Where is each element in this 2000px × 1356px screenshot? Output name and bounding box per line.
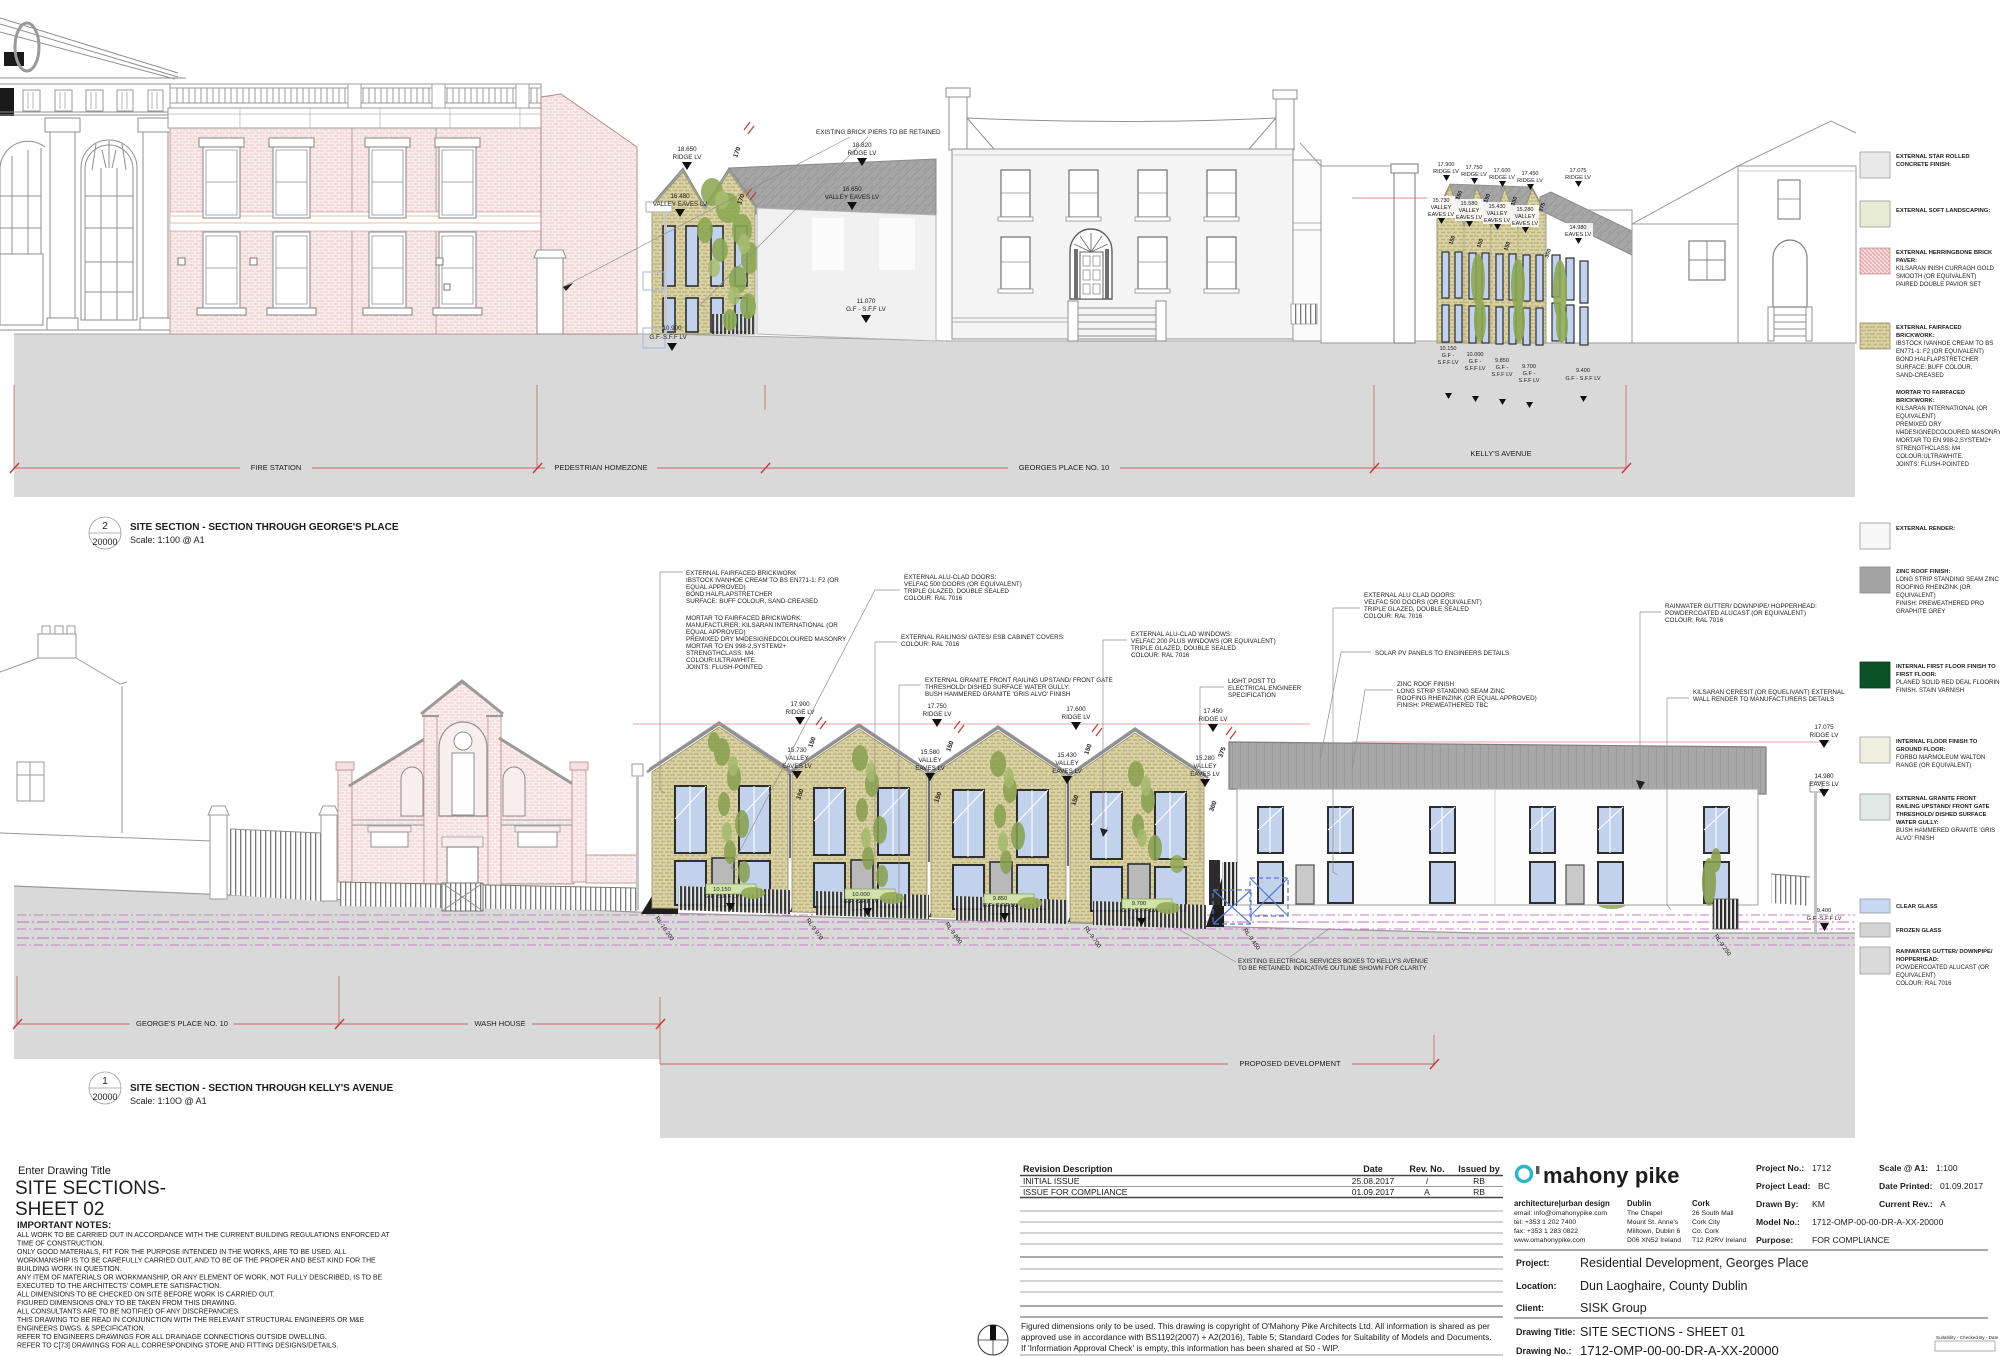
svg-text:17.075: 17.075 — [1569, 168, 1586, 174]
svg-text:15.280: 15.280 — [1516, 207, 1533, 213]
svg-text:ELECTRICAL ENGINEER: ELECTRICAL ENGINEER — [1228, 685, 1302, 692]
svg-text:SPECIFICATION: SPECIFICATION — [1228, 692, 1276, 699]
svg-text:ROOFING RHEINZINK (OR EQUAL AP: ROOFING RHEINZINK (OR EQUAL APPROVED) — [1397, 695, 1537, 702]
svg-text:SISK Group: SISK Group — [1580, 1301, 1647, 1315]
svg-text:Milltown, Dublin 6: Milltown, Dublin 6 — [1627, 1228, 1680, 1235]
svg-text:11.070: 11.070 — [857, 298, 876, 305]
svg-text:G.F -: G.F - — [1496, 365, 1509, 371]
svg-text:INTERNAL FLOOR FINISH TO: INTERNAL FLOOR FINISH TO — [1896, 739, 1978, 745]
svg-text:Project Lead:: Project Lead: — [1756, 1181, 1811, 1191]
svg-text:THRESHOLD/ DISHED SURFACE: THRESHOLD/ DISHED SURFACE — [1896, 812, 1987, 818]
svg-text:S.F.F LV: S.F.F LV — [1491, 372, 1512, 378]
svg-text:20000: 20000 — [92, 1092, 117, 1102]
svg-text:RANGE (OR EQUIVALENT): RANGE (OR EQUIVALENT) — [1896, 763, 1971, 769]
svg-text:17.900: 17.900 — [1437, 162, 1454, 168]
svg-text:ALVO' FINISH: ALVO' FINISH — [1896, 836, 1934, 842]
svg-text:EAVES LV: EAVES LV — [915, 765, 945, 772]
svg-text:COLOUR: RAL 7016: COLOUR: RAL 7016 — [1665, 617, 1724, 624]
svg-text:Suitability - Checked By - Dat: Suitability - Checked By - Date — [1936, 1335, 1999, 1340]
svg-text:RIDGE LV: RIDGE LV — [1433, 169, 1459, 175]
svg-text:If 'Information Approval Check: If 'Information Approval Check' is empty… — [1021, 1343, 1340, 1353]
svg-text:17.600: 17.600 — [1493, 168, 1510, 174]
svg-text:1712-OMP-00-00-DR-A-XX-20000: 1712-OMP-00-00-DR-A-XX-20000 — [1812, 1217, 1944, 1227]
svg-text:COLOUR: RAL 7016: COLOUR: RAL 7016 — [1364, 613, 1423, 620]
svg-text:SITE SECTION - SECTION THROUGH: SITE SECTION - SECTION THROUGH GEORGE'S … — [130, 522, 399, 533]
svg-text:MORTAR TO EN 998-2,SYSTEM2+: MORTAR TO EN 998-2,SYSTEM2+ — [1896, 438, 1992, 444]
svg-text:18.650: 18.650 — [677, 146, 697, 153]
svg-text:EXTERNAL FAIRFACED BRICKWORK: EXTERNAL FAIRFACED BRICKWORK — [686, 570, 797, 577]
svg-text:TO BE RETAINED. INDICATIVE OUT: TO BE RETAINED. INDICATIVE OUTLINE SHOWN… — [1238, 965, 1427, 972]
svg-text:VELFAC 500 DOORS (OR EQUIVALEN: VELFAC 500 DOORS (OR EQUIVALENT) — [1364, 599, 1482, 606]
svg-text:G.F -S.F.F LV: G.F -S.F.F LV — [983, 903, 1018, 909]
svg-text:MORTAR TO FAIRFACED BRICKWORK:: MORTAR TO FAIRFACED BRICKWORK: — [686, 615, 802, 622]
svg-text:14.980: 14.980 — [1569, 225, 1586, 231]
svg-text:RB: RB — [1473, 1187, 1485, 1197]
svg-text:SAND-CREASED: SAND-CREASED — [1896, 373, 1944, 379]
svg-text:Dun Laoghaire, County Dublin: Dun Laoghaire, County Dublin — [1580, 1279, 1748, 1293]
svg-text:Co. Cork: Co. Cork — [1692, 1228, 1719, 1235]
svg-text:RIDGE LV: RIDGE LV — [1810, 732, 1840, 739]
svg-text:EAVES LV: EAVES LV — [782, 763, 812, 770]
svg-text:SITE SECTION - SECTION THROUGH: SITE SECTION - SECTION THROUGH KELLY'S A… — [130, 1083, 393, 1094]
svg-text:TIME OF CONSTRUCTION.: TIME OF CONSTRUCTION. — [17, 1241, 104, 1248]
svg-text:S.F.F LV: S.F.F LV — [1437, 360, 1458, 366]
svg-text:EXTERNAL RAILINGS/ GATES/ ESB: EXTERNAL RAILINGS/ GATES/ ESB CABINET CO… — [901, 634, 1065, 641]
svg-text:VALLEY: VALLEY — [1515, 214, 1536, 220]
svg-text:9.850: 9.850 — [1495, 358, 1509, 364]
svg-text:RIDGE LV: RIDGE LV — [1062, 714, 1092, 721]
svg-text:G.F -: G.F - — [1469, 359, 1482, 365]
svg-text:Residential Development, Georg: Residential Development, Georges Place — [1580, 1256, 1809, 1270]
svg-text:Issued by: Issued by — [1458, 1164, 1500, 1174]
svg-text:Project No.:: Project No.: — [1756, 1163, 1804, 1173]
svg-text:01.09.2017: 01.09.2017 — [1940, 1181, 1983, 1191]
svg-text:EXTERNAL RENDER:: EXTERNAL RENDER: — [1896, 526, 1955, 532]
svg-text:Drawing Title:: Drawing Title: — [1516, 1327, 1575, 1337]
svg-text:A: A — [1940, 1199, 1946, 1209]
svg-text:COLOUR: RAL 7016: COLOUR: RAL 7016 — [904, 595, 963, 602]
svg-text:D06 XN52 Ireland: D06 XN52 Ireland — [1627, 1237, 1681, 1244]
svg-text:EXTERNAL STAR ROLLED: EXTERNAL STAR ROLLED — [1896, 154, 1970, 160]
svg-text:FIGURED DIMENSIONS ONLY TO BE: FIGURED DIMENSIONS ONLY TO BE TAKEN FROM… — [17, 1300, 237, 1307]
svg-text:EXISTING BRICK PIERS TO BE RET: EXISTING BRICK PIERS TO BE RETAINED — [816, 129, 941, 136]
svg-text:9.850: 9.850 — [993, 896, 1008, 902]
svg-text:approved use in accordance wit: approved use in accordance with BS1192(2… — [1021, 1332, 1492, 1342]
svg-text:01.09.2017: 01.09.2017 — [1352, 1187, 1395, 1197]
svg-text:EN771-1: F2 (OR EQUIVALENT): EN771-1: F2 (OR EQUIVALENT) — [1896, 349, 1984, 355]
svg-text:The Chapel: The Chapel — [1627, 1210, 1663, 1217]
svg-text:Scale: 1:10O @ A1: Scale: 1:10O @ A1 — [130, 1096, 207, 1106]
svg-text:email: info@omahonypike.com: email: info@omahonypike.com — [1514, 1210, 1607, 1217]
svg-text:ROOFING RHEINZINK (OR: ROOFING RHEINZINK (OR — [1896, 585, 1971, 591]
svg-text:Rev. No.: Rev. No. — [1409, 1164, 1444, 1174]
svg-text:BRICKWORK:: BRICKWORK: — [1896, 398, 1935, 404]
svg-text:PAIRED DOUBLE PAVIOR SET: PAIRED DOUBLE PAVIOR SET — [1896, 282, 1981, 288]
svg-text:EXTERNAL ALU CLAD DOORS:: EXTERNAL ALU CLAD DOORS: — [1364, 592, 1456, 599]
svg-text:1: 1 — [102, 1076, 108, 1087]
svg-text:SMOOTH (OR EQUIVALENT): SMOOTH (OR EQUIVALENT) — [1896, 274, 1976, 280]
svg-text:LIGHT POST TO: LIGHT POST TO — [1228, 678, 1276, 685]
svg-text:EAVES LV: EAVES LV — [1456, 215, 1482, 221]
svg-text:RAINWATER GUTTER/ DOWNPIPE/: RAINWATER GUTTER/ DOWNPIPE/ — [1896, 949, 1993, 955]
svg-text:PAVER:: PAVER: — [1896, 258, 1917, 264]
svg-text:S.F.F LV: S.F.F LV — [1518, 378, 1539, 384]
svg-text:16.650: 16.650 — [842, 186, 862, 193]
svg-text:G.F -: G.F - — [1442, 353, 1455, 359]
svg-text:Purpose:: Purpose: — [1756, 1235, 1793, 1245]
svg-text:26 South Mall: 26 South Mall — [1692, 1210, 1734, 1217]
svg-text:ALL WORK TO BE CARRIED OUT IN: ALL WORK TO BE CARRIED OUT IN ACCORDANCE… — [17, 1232, 390, 1239]
svg-text:HOPPERHEAD:: HOPPERHEAD: — [1896, 957, 1939, 963]
svg-text:GEORGE'S PLACE NO. 10: GEORGE'S PLACE NO. 10 — [136, 1019, 228, 1028]
svg-text:EXTERNAL ALU-CLAD WINDOWS:: EXTERNAL ALU-CLAD WINDOWS: — [1131, 631, 1232, 638]
svg-text:EXTERNAL GRANITE FRONT: EXTERNAL GRANITE FRONT — [1896, 796, 1977, 802]
svg-text:VALLEY: VALLEY — [1487, 211, 1508, 217]
svg-text:COLOUR: RAL 7016: COLOUR: RAL 7016 — [901, 641, 960, 648]
svg-text:EAVES LV: EAVES LV — [1565, 232, 1591, 238]
svg-text:FORBO MARMOLEUM WALTON: FORBO MARMOLEUM WALTON — [1896, 755, 1985, 761]
svg-text:FINISH: PREWEATHERED TBC: FINISH: PREWEATHERED TBC — [1397, 702, 1489, 709]
svg-text:17.075: 17.075 — [1814, 724, 1834, 731]
svg-text:17.750: 17.750 — [927, 703, 947, 710]
svg-text:TRIPLE GLAZED, DOUBLE SEALED: TRIPLE GLAZED, DOUBLE SEALED — [1131, 645, 1236, 652]
svg-text:Project:: Project: — [1516, 1258, 1550, 1268]
svg-text:9.400: 9.400 — [1817, 908, 1832, 914]
svg-text:IMPORTANT NOTES:: IMPORTANT NOTES: — [17, 1220, 111, 1231]
svg-text:BOND:HALFLAPSTRETCHER: BOND:HALFLAPSTRETCHER — [1896, 357, 1979, 363]
svg-text:15.580: 15.580 — [920, 749, 940, 756]
svg-text:16.480: 16.480 — [670, 193, 690, 200]
svg-text:G.F -S.F.F LV: G.F -S.F.F LV — [1807, 916, 1842, 922]
svg-text:BRICKWORK:: BRICKWORK: — [1896, 333, 1935, 339]
svg-text:tel: +353 1 202 7400: tel: +353 1 202 7400 — [1514, 1219, 1576, 1226]
svg-text:FOR COMPLIANCE: FOR COMPLIANCE — [1812, 1235, 1890, 1245]
svg-text:Enter Drawing Title: Enter Drawing Title — [18, 1165, 111, 1177]
svg-text:RB: RB — [1473, 1176, 1485, 1186]
svg-text:EAVES LV: EAVES LV — [1512, 221, 1538, 227]
svg-text:ZINC ROOF FINISH:: ZINC ROOF FINISH: — [1896, 569, 1950, 575]
svg-text:G.F -S.F.F LV: G.F -S.F.F LV — [844, 899, 879, 905]
svg-text:10.150: 10.150 — [1439, 346, 1456, 352]
svg-text:9.700: 9.700 — [1522, 364, 1536, 370]
svg-text:ISSUE FOR COMPLIANCE: ISSUE FOR COMPLIANCE — [1023, 1187, 1128, 1197]
svg-text:EQUAL APPROVED): EQUAL APPROVED) — [686, 584, 746, 591]
svg-text:BUSH HAMMERED GRANITE 'GRIS AL: BUSH HAMMERED GRANITE 'GRIS ALVO' FINISH — [925, 691, 1071, 698]
svg-text:CLEAR GLASS: CLEAR GLASS — [1896, 904, 1938, 910]
svg-text:MANUFACTURER: KILSARAN INTERNA: MANUFACTURER: KILSARAN INTERNATIONAL (OR — [686, 622, 838, 629]
svg-text:SITE SECTIONS - SHEET 01: SITE SECTIONS - SHEET 01 — [1580, 1325, 1745, 1339]
svg-text:TRIPLE GLAZED, DOUBLE SEALED: TRIPLE GLAZED, DOUBLE SEALED — [1364, 606, 1469, 613]
svg-text:RIDGE LV: RIDGE LV — [786, 709, 816, 716]
svg-text:JOINTS: FLUSH-POINTED: JOINTS: FLUSH-POINTED — [1896, 462, 1970, 468]
svg-text:COLOUR: RAL 7016: COLOUR: RAL 7016 — [1131, 652, 1190, 659]
svg-text:POWDERCOATED ALUCAST (OR EQUIV: POWDERCOATED ALUCAST (OR EQUIVALENT) — [1665, 610, 1806, 617]
svg-text:ZINC ROOF FINISH: ZINC ROOF FINISH — [1397, 681, 1454, 688]
svg-text:EXTERNAL FAIRFACED: EXTERNAL FAIRFACED — [1896, 325, 1962, 331]
svg-text:EXISTING ELECTRICAL SERVICES B: EXISTING ELECTRICAL SERVICES BOXES TO KE… — [1238, 958, 1428, 965]
svg-text:15.280: 15.280 — [1195, 755, 1215, 762]
svg-text:IBSTOCK IVANHOE CREAM TO BS: IBSTOCK IVANHOE CREAM TO BS — [1896, 341, 1993, 347]
svg-text:WORKMANSHIP IS TO BE CAREFULLY: WORKMANSHIP IS TO BE CAREFULLY CARRIED O… — [17, 1258, 376, 1265]
svg-text:BOND:HALFLAPSTRETCHER: BOND:HALFLAPSTRETCHER — [686, 591, 773, 598]
svg-text:LONG STRIP STANDING SEAM ZINC: LONG STRIP STANDING SEAM ZINC — [1397, 688, 1505, 695]
svg-text:VALLEY: VALLEY — [1459, 208, 1480, 214]
svg-text:10.150: 10.150 — [713, 887, 731, 893]
svg-text:S.F.F LV: S.F.F LV — [1464, 366, 1485, 372]
svg-text:REFER TO C[73] DRAWINGS FOR AL: REFER TO C[73] DRAWINGS FOR ALL CORRESPO… — [17, 1343, 338, 1350]
svg-text:POWDERCOATED ALUCAST (OR: POWDERCOATED ALUCAST (OR — [1896, 965, 1990, 971]
svg-text:1712: 1712 — [1812, 1163, 1831, 1173]
svg-text:KM: KM — [1812, 1199, 1825, 1209]
svg-text:RIDGE LV: RIDGE LV — [1461, 172, 1487, 178]
svg-text:T12 R2RV Ireland: T12 R2RV Ireland — [1692, 1237, 1746, 1244]
svg-text:2: 2 — [102, 521, 108, 532]
svg-text:VALLEY: VALLEY — [1431, 205, 1452, 211]
svg-text:Revision Description: Revision Description — [1023, 1164, 1113, 1174]
svg-text:9.400: 9.400 — [1576, 368, 1590, 374]
svg-text:TRIPLE GLAZED, DOUBLE SEALED: TRIPLE GLAZED, DOUBLE SEALED — [904, 588, 1009, 595]
svg-text:17.450: 17.450 — [1203, 708, 1223, 715]
svg-text:20000: 20000 — [92, 537, 117, 547]
svg-text:COLOUR:ULTRAWHITE.: COLOUR:ULTRAWHITE. — [1896, 454, 1964, 460]
svg-text:G.F - S.F.F LV: G.F - S.F.F LV — [846, 306, 887, 313]
svg-text:FINISH. STAIN VARNISH: FINISH. STAIN VARNISH — [1896, 688, 1964, 694]
svg-text:INTERNAL FIRST FLOOR FINISH TO: INTERNAL FIRST FLOOR FINISH TO — [1896, 664, 1996, 670]
svg-text:PREMIXED DRY M4DESIGNEDCOLOURE: PREMIXED DRY M4DESIGNEDCOLOURED MASONRY — [686, 636, 847, 643]
svg-text:MORTAR TO FAIRFACED: MORTAR TO FAIRFACED — [1896, 390, 1965, 396]
svg-text:G.F - S.F.F LV: G.F - S.F.F LV — [1565, 376, 1601, 382]
svg-text:EXTERNAL GRANITE FRONT RAILING: EXTERNAL GRANITE FRONT RAILING UPSTAND/ … — [925, 677, 1113, 684]
svg-text:Cork City: Cork City — [1692, 1219, 1721, 1226]
svg-text:VELFAC 200 PLUS WINDOWS (OR EQ: VELFAC 200 PLUS WINDOWS (OR EQUIVALENT) — [1131, 638, 1276, 645]
svg-text:GRAPHITE GREY: GRAPHITE GREY — [1896, 609, 1945, 615]
svg-text:17.600: 17.600 — [1066, 706, 1086, 713]
svg-text:MORTAR TO EN 998-2,SYSTEM2+: MORTAR TO EN 998-2,SYSTEM2+ — [686, 643, 786, 650]
svg-text:RAINWATER GUTTER/ DOWNPIPE/ HO: RAINWATER GUTTER/ DOWNPIPE/ HOPPERHEAD: — [1665, 603, 1817, 610]
svg-text:EQUIVALENT): EQUIVALENT) — [1896, 593, 1936, 599]
svg-text:SURFACE: BUFF COLOUR,: SURFACE: BUFF COLOUR, — [1896, 365, 1973, 371]
svg-text:GROUND FLOOR:: GROUND FLOOR: — [1896, 747, 1946, 753]
svg-text:FROZEN GLASS: FROZEN GLASS — [1896, 928, 1942, 934]
svg-text:THIS DRAWING TO BE READ IN CON: THIS DRAWING TO BE READ IN CONJUNCTION W… — [17, 1317, 365, 1324]
svg-text:RIDGE LV: RIDGE LV — [1565, 175, 1591, 181]
svg-text:KELLY'S AVENUE: KELLY'S AVENUE — [1470, 449, 1531, 458]
svg-text:STRENGTHCLASS: M4: STRENGTHCLASS: M4 — [1896, 446, 1961, 452]
svg-text:GEORGES PLACE NO. 10: GEORGES PLACE NO. 10 — [1019, 463, 1109, 472]
svg-text:EAVES LV: EAVES LV — [1809, 781, 1839, 788]
svg-text:15.430: 15.430 — [1057, 752, 1077, 759]
svg-text:architecture|urban design: architecture|urban design — [1514, 1199, 1610, 1208]
svg-text:M4DESIGNEDCOLOURED MASONRY: M4DESIGNEDCOLOURED MASONRY — [1896, 430, 2000, 436]
svg-text:G.F -S.F.F LV: G.F -S.F.F LV — [1122, 908, 1157, 914]
svg-text:IBSTOCK IVANHOE CREAM TO BS EN: IBSTOCK IVANHOE CREAM TO BS EN771-1: F2 … — [686, 577, 839, 584]
svg-text:15.430: 15.430 — [1488, 204, 1505, 210]
svg-text:fax: +353 1 283 0822: fax: +353 1 283 0822 — [1514, 1228, 1578, 1235]
svg-text:SOLAR PV PANELS TO ENGINEERS D: SOLAR PV PANELS TO ENGINEERS DETAILS — [1375, 650, 1509, 657]
svg-text:WASH HOUSE: WASH HOUSE — [475, 1019, 526, 1028]
svg-text:Date Printed:: Date Printed: — [1879, 1181, 1933, 1191]
svg-text:RIDGE LV: RIDGE LV — [673, 154, 703, 161]
svg-text:INITIAL ISSUE: INITIAL ISSUE — [1023, 1176, 1080, 1186]
svg-text:Dublin: Dublin — [1627, 1199, 1651, 1208]
svg-text:1:100: 1:100 — [1936, 1163, 1958, 1173]
svg-text:RIDGE LV: RIDGE LV — [1517, 178, 1543, 184]
svg-text:ALL DIMENSIONS TO BE CHECKED O: ALL DIMENSIONS TO BE CHECKED ON SITE BEF… — [17, 1292, 275, 1299]
svg-text:Model No.:: Model No.: — [1756, 1217, 1800, 1227]
svg-text:10.000: 10.000 — [852, 892, 870, 898]
svg-text:FINISH: PREWEATHERED PRO: FINISH: PREWEATHERED PRO — [1896, 601, 1984, 607]
svg-text:Drawn By:: Drawn By: — [1756, 1199, 1799, 1209]
svg-text:17.450: 17.450 — [1521, 171, 1538, 177]
svg-text:10.900: 10.900 — [662, 325, 682, 332]
svg-text:Date: Date — [1363, 1164, 1383, 1174]
svg-text:RAILING UPSTAND/ FRONT GATE: RAILING UPSTAND/ FRONT GATE — [1896, 804, 1990, 810]
svg-text:9.700: 9.700 — [1132, 901, 1147, 907]
svg-text:EQUIVALENT): EQUIVALENT) — [1896, 973, 1936, 979]
svg-text:25.08.2017: 25.08.2017 — [1352, 1176, 1395, 1186]
svg-text:Cork: Cork — [1692, 1199, 1710, 1208]
svg-text:17.750: 17.750 — [1465, 165, 1482, 171]
svg-text:VALLEY: VALLEY — [1055, 760, 1079, 767]
svg-text:RIDGE LV: RIDGE LV — [1199, 716, 1229, 723]
svg-text:1712-OMP-00-00-DR-A-XX-20000: 1712-OMP-00-00-DR-A-XX-20000 — [1580, 1343, 1779, 1356]
svg-text:PEDESTRIAN HOMEZONE: PEDESTRIAN HOMEZONE — [554, 463, 647, 472]
svg-text:WATER GULLY:: WATER GULLY: — [1896, 820, 1939, 826]
svg-text:WALL RENDER TO MANUFACTURERS D: WALL RENDER TO MANUFACTURERS DETAILS — [1693, 696, 1834, 703]
svg-text:VALLEY EAVES LV: VALLEY EAVES LV — [825, 194, 880, 201]
svg-text:EQUIVALENT): EQUIVALENT) — [1896, 414, 1936, 420]
svg-text:KILSARAN INISH CURRAGH GOLD: KILSARAN INISH CURRAGH GOLD — [1896, 266, 1995, 272]
svg-text:Current Rev.:: Current Rev.: — [1879, 1199, 1933, 1209]
svg-text:ALL CONSULTANTS ARE TO BE NOTI: ALL CONSULTANTS ARE TO BE NOTIFIED OF AN… — [17, 1309, 240, 1316]
svg-text:EXTERNAL ALU-CLAD DOORS:: EXTERNAL ALU-CLAD DOORS: — [904, 574, 996, 581]
svg-text:Client:: Client: — [1516, 1303, 1544, 1313]
svg-text:REFER TO ENGINEERS DRAWINGS FO: REFER TO ENGINEERS DRAWINGS FOR ALL DRAI… — [17, 1334, 327, 1341]
svg-text:www.omahonypike.com: www.omahonypike.com — [1513, 1237, 1586, 1244]
svg-text:PREMIXED DRY: PREMIXED DRY — [1896, 422, 1942, 428]
svg-text:FIRE STATION: FIRE STATION — [251, 463, 302, 472]
svg-text:LONG STRIP STANDING SEAM ZINC: LONG STRIP STANDING SEAM ZINC — [1896, 577, 1999, 583]
svg-text:KILSARAN CERESIT (OR EQUELIVAN: KILSARAN CERESIT (OR EQUELIVANT) EXTERNA… — [1693, 689, 1845, 696]
svg-text:Figured dimensions only to be: Figured dimensions only to be used. This… — [1021, 1321, 1490, 1331]
svg-text:COLOUR: RAL 7016: COLOUR: RAL 7016 — [1896, 981, 1952, 987]
svg-text:SURFACE: BUFF COLOUR, SAND-CRE: SURFACE: BUFF COLOUR, SAND-CREASED — [686, 598, 818, 605]
svg-text:Location:: Location: — [1516, 1281, 1557, 1291]
svg-text:SITE SECTIONS-: SITE SECTIONS- — [15, 1178, 166, 1199]
svg-text:SHEET 02: SHEET 02 — [15, 1199, 104, 1220]
svg-text:G.F.-S.F.F LV: G.F.-S.F.F LV — [649, 334, 687, 341]
svg-text:ONLY GOOD MATERIALS, FIT FOR T: ONLY GOOD MATERIALS, FIT FOR THE PURPOSE… — [17, 1249, 347, 1256]
svg-text:EXECUTED TO THE ARCHITECTS' CO: EXECUTED TO THE ARCHITECTS' COMPLETE SAT… — [17, 1283, 221, 1290]
svg-text:COLOUR:ULTRAWHITE.: COLOUR:ULTRAWHITE. — [686, 657, 757, 664]
svg-text:EXTERNAL HERRINGBONE BRICK: EXTERNAL HERRINGBONE BRICK — [1896, 250, 1993, 256]
svg-text:THRESHOLD/ DISHED SURFACE WATE: THRESHOLD/ DISHED SURFACE WATER GULLY: — [925, 684, 1070, 691]
svg-text:ANY ITEM OF MATERIALS OR WORKM: ANY ITEM OF MATERIALS OR WORKMANSHIP, OR… — [17, 1275, 383, 1282]
svg-text:EQUAL APPROVED): EQUAL APPROVED) — [686, 629, 746, 636]
svg-text:BUSH HAMMERED GRANITE 'GRIS: BUSH HAMMERED GRANITE 'GRIS — [1896, 828, 1995, 834]
svg-text:EAVES LV: EAVES LV — [1190, 771, 1220, 778]
svg-text:mahony pike: mahony pike — [1543, 1163, 1680, 1188]
svg-text:EAVES LV: EAVES LV — [1428, 212, 1454, 218]
svg-text:G.F -S.F.F LV: G.F -S.F.F LV — [705, 894, 740, 900]
svg-text:STRENGTHCLASS: M4.: STRENGTHCLASS: M4. — [686, 650, 756, 657]
svg-text:15.580: 15.580 — [1460, 201, 1477, 207]
svg-text:ENGINEERS DWGS. & SPECIFICATIO: ENGINEERS DWGS. & SPECIFICATION. — [17, 1326, 146, 1333]
svg-text:Mount St. Anne's: Mount St. Anne's — [1627, 1219, 1679, 1226]
svg-text:JOINTS: FLUSH-POINTED: JOINTS: FLUSH-POINTED — [686, 664, 763, 671]
svg-text:PLANED SOLID RED DEAL FLOORING: PLANED SOLID RED DEAL FLOORING — [1896, 680, 2000, 686]
svg-text:15.730: 15.730 — [1432, 198, 1449, 204]
svg-text:KILSARAN INTERNATIONAL (OR: KILSARAN INTERNATIONAL (OR — [1896, 406, 1988, 412]
svg-text:EXTERNAL SOFT LANDSCAPING:: EXTERNAL SOFT LANDSCAPING: — [1896, 208, 1990, 214]
svg-text:EAVES LV: EAVES LV — [1484, 218, 1510, 224]
svg-text:PROPOSED DEVELOPMENT: PROPOSED DEVELOPMENT — [1239, 1059, 1341, 1068]
svg-text:CONCRETE FINISH:: CONCRETE FINISH: — [1896, 162, 1951, 168]
svg-text:G.F -: G.F - — [1523, 371, 1536, 377]
svg-text:18.820: 18.820 — [852, 142, 872, 149]
svg-text:Drawing No.:: Drawing No.: — [1516, 1346, 1572, 1356]
svg-text:BC: BC — [1818, 1181, 1830, 1191]
svg-text:VALLEY EAVES LV: VALLEY EAVES LV — [653, 201, 708, 208]
svg-text:A: A — [1424, 1187, 1430, 1197]
svg-text:VELFAC 500 DOORS (OR EQUIVALEN: VELFAC 500 DOORS (OR EQUIVALENT) — [904, 581, 1022, 588]
svg-text:RIDGE LV: RIDGE LV — [1489, 175, 1515, 181]
svg-text:14.980: 14.980 — [1814, 773, 1834, 780]
svg-text:RIDGE LV: RIDGE LV — [923, 711, 953, 718]
svg-text:EAVES LV: EAVES LV — [1052, 768, 1082, 775]
svg-text:RIDGE LV: RIDGE LV — [848, 150, 878, 157]
svg-text:BUILDING WORK IN QUESTION.: BUILDING WORK IN QUESTION. — [17, 1266, 122, 1273]
svg-text:VALLEY: VALLEY — [1193, 763, 1217, 770]
svg-text:FIRST FLOOR:: FIRST FLOOR: — [1896, 672, 1937, 678]
svg-text:10.000: 10.000 — [1466, 352, 1483, 358]
svg-text:17.900: 17.900 — [790, 701, 810, 708]
svg-text:Scale @ A1:: Scale @ A1: — [1879, 1163, 1928, 1173]
svg-text:Scale: 1:100 @ A1: Scale: 1:100 @ A1 — [130, 535, 205, 545]
svg-text:VALLEY: VALLEY — [918, 757, 942, 764]
